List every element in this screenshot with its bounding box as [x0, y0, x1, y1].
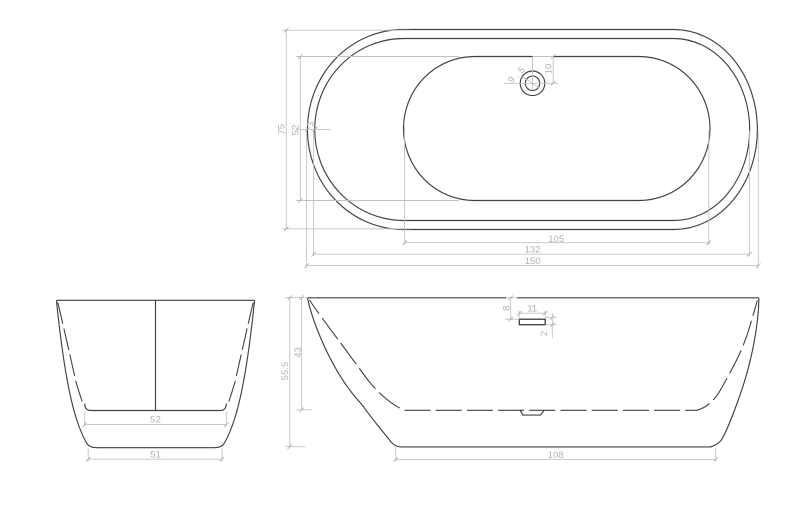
svg-text:43: 43	[293, 347, 304, 358]
svg-text:52: 52	[291, 125, 302, 136]
svg-text:11: 11	[527, 303, 537, 314]
svg-text:8: 8	[501, 306, 512, 311]
svg-text:105: 105	[548, 234, 564, 245]
svg-text:2: 2	[539, 331, 550, 336]
svg-text:51: 51	[150, 449, 161, 460]
svg-text:52: 52	[150, 414, 161, 425]
svg-text:3: 3	[305, 122, 316, 127]
svg-text:150: 150	[525, 256, 541, 267]
svg-text:132: 132	[525, 245, 541, 256]
svg-text:10: 10	[544, 64, 555, 75]
svg-text:55.5: 55.5	[280, 362, 291, 381]
svg-text:75: 75	[277, 124, 288, 135]
svg-text:108: 108	[548, 450, 564, 461]
